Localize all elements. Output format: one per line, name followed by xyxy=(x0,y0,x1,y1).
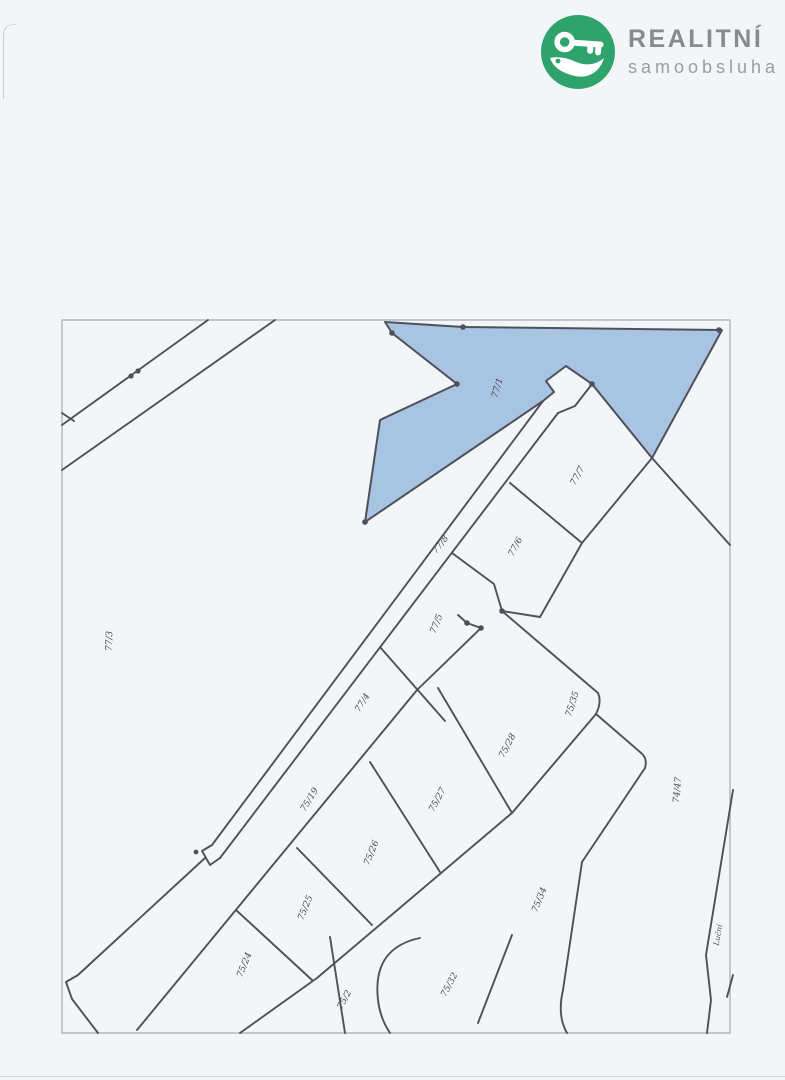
cadastral-map-drawing xyxy=(0,0,785,1080)
scanned-page: REALITNÍ samoobsluha xyxy=(0,0,785,1080)
highlighted-parcel-77-1 xyxy=(365,322,722,522)
